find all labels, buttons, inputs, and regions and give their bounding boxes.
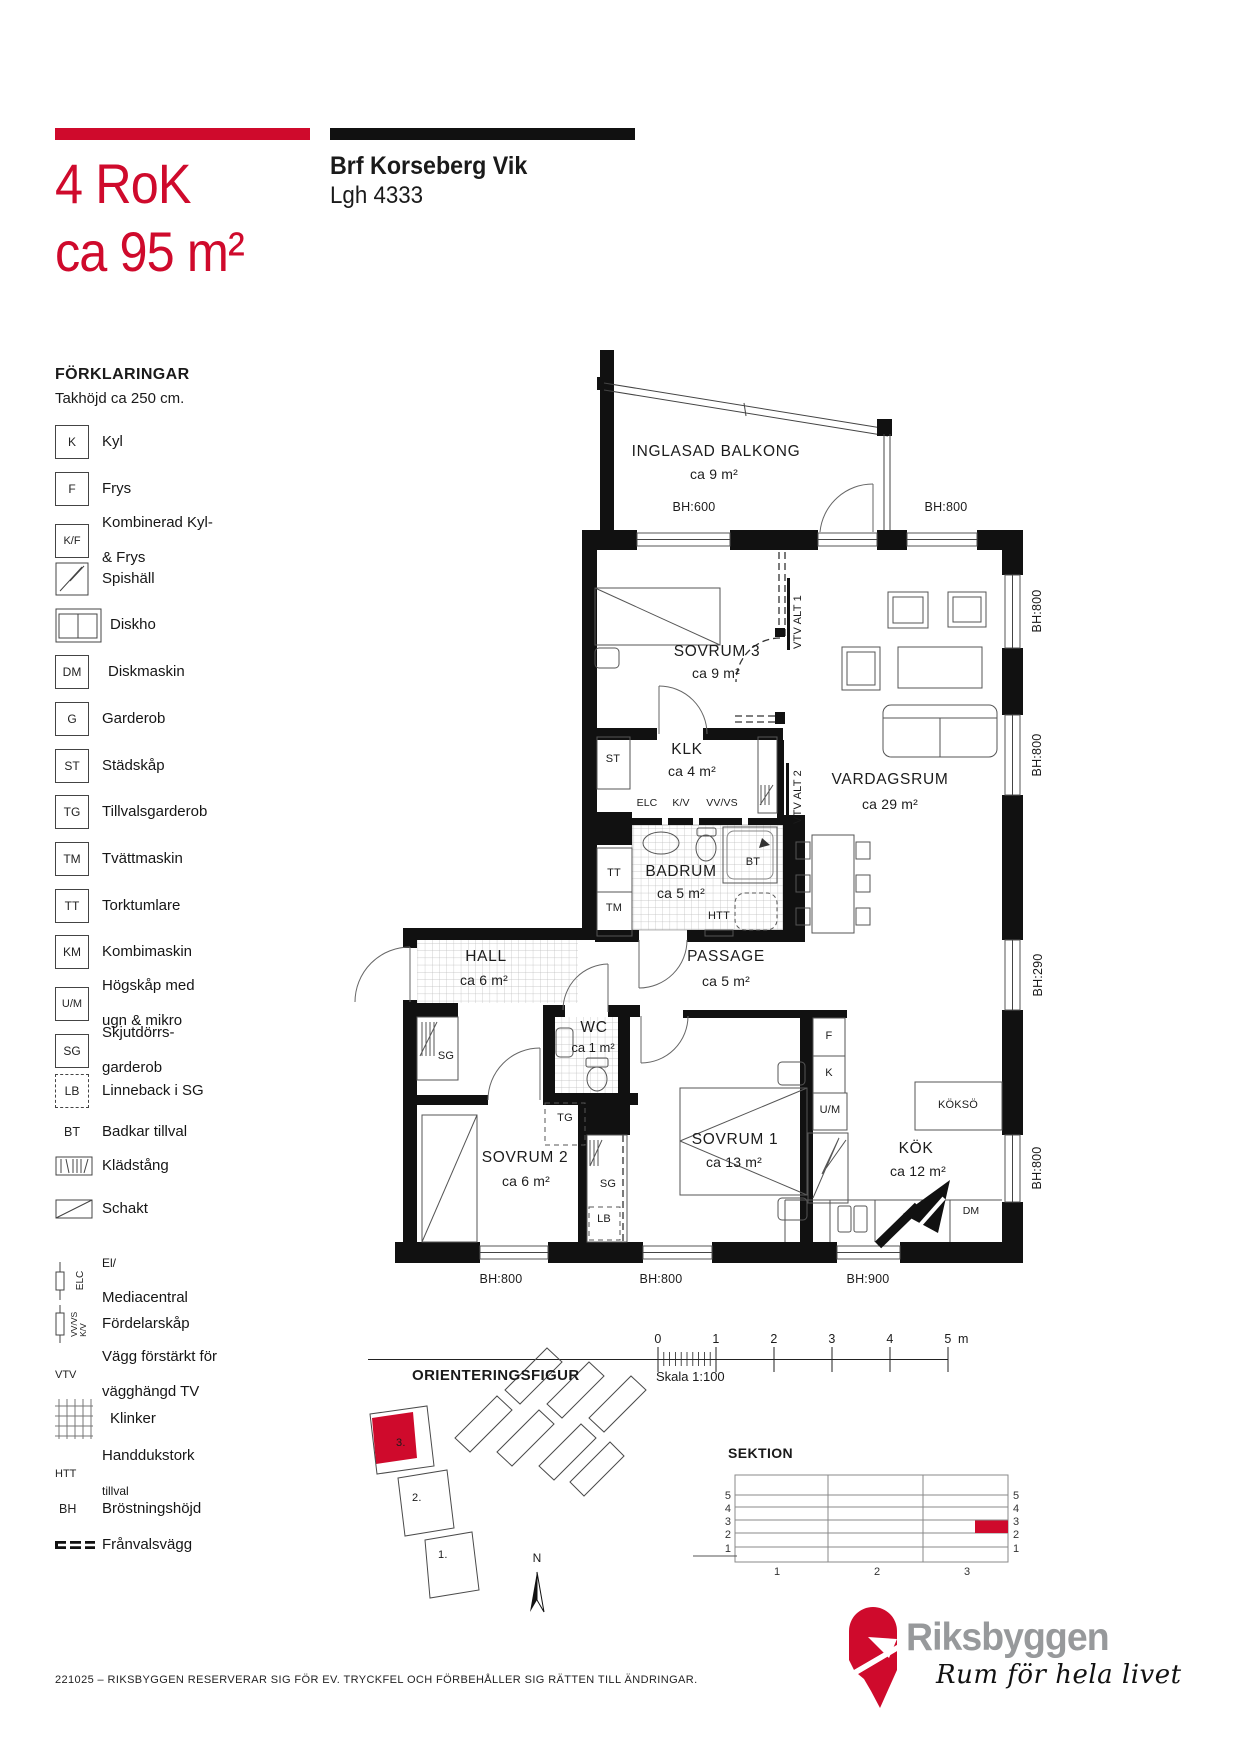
scale-tick-1: 1: [712, 1332, 719, 1346]
bh-label-right2: BH:800: [1030, 734, 1044, 777]
legend-item-kombinerad-kylfrys: K/F Kombinerad Kyl- & Frys: [55, 514, 213, 567]
compass-needle: [530, 1572, 544, 1612]
legend-label: Tillvalsgarderob: [102, 803, 207, 821]
legend-item-franvalsvagg: Frånvalsvägg: [55, 1533, 192, 1557]
north-label: N: [533, 1551, 542, 1565]
legend-item-kombimaskin: KM Kombimaskin: [55, 934, 192, 970]
room-area-sovrum2: ca 6 m²: [502, 1173, 550, 1189]
room-area-wc: ca 1 m²: [571, 1040, 614, 1055]
legend-label: Schakt: [102, 1200, 148, 1218]
legend-label: Högskåp med: [102, 977, 195, 994]
shaft-icon: [55, 1199, 93, 1219]
room-label-vardagsrum: VARDAGSRUM: [832, 771, 949, 789]
fixture-label-sg-hall: SG: [438, 1050, 454, 1062]
scale-tick-4: 4: [886, 1332, 893, 1346]
balcony-structure: [597, 350, 892, 532]
legend-label: Tvättmaskin: [102, 850, 183, 868]
fixture-label-lb: LB: [597, 1213, 611, 1225]
floor-label-left-5: 5: [725, 1490, 731, 1502]
scale-tick-0: 0: [654, 1332, 661, 1346]
room-area-passage: ca 5 m²: [702, 973, 750, 989]
elc-icon: [55, 1262, 69, 1300]
floor-label-left-4: 4: [725, 1503, 731, 1515]
fixture-label-st: ST: [606, 753, 620, 765]
bh-label-balkong: BH:600: [673, 500, 716, 514]
legend-label: Skjutdörrs-: [102, 1024, 175, 1041]
legend-label: El/: [102, 1256, 116, 1270]
title-line1: 4 RoK: [55, 150, 244, 218]
fixture-label-frys: F: [826, 1030, 833, 1042]
floorplan-sheet: 4 RoK ca 95 m² Brf Korseberg Vik Lgh 433…: [0, 0, 1240, 1754]
legend-label: Diskmaskin: [108, 663, 185, 681]
room-area-kok: ca 12 m²: [890, 1163, 946, 1179]
project-name: Brf Korseberg Vik: [330, 152, 527, 181]
bh-label-bottom2: BH:800: [640, 1272, 683, 1286]
htt-symbol: HTT: [55, 1468, 76, 1480]
fixture-label-kokso: KÖKSÖ: [938, 1099, 978, 1111]
fixture-label-tg: TG: [557, 1112, 573, 1124]
room-area-sovrum1: ca 13 m²: [706, 1154, 762, 1170]
room-label-hall: HALL: [465, 948, 507, 966]
fixture-label-dm: DM: [963, 1205, 980, 1217]
st-symbol-box: ST: [55, 749, 89, 783]
room-label-sovrum3: SOVRUM 3: [674, 643, 761, 661]
legend-label: Torktumlare: [102, 897, 180, 915]
floorplan-drawing: [330, 340, 1060, 1300]
km-symbol-box: KM: [55, 935, 89, 969]
legend-item-klinker: Klinker: [55, 1398, 156, 1440]
room-label-badrum: BADRUM: [645, 863, 716, 881]
footer-disclaimer: 221025 – RIKSBYGGEN RESERVERAR SIG FÖR E…: [55, 1674, 698, 1686]
room-label-sovrum1: SOVRUM 1: [692, 1131, 779, 1149]
vtv-symbol: VTV: [55, 1369, 76, 1381]
fixture-label-elc: ELC: [637, 797, 658, 809]
section-column-3: 3: [964, 1566, 970, 1578]
legend-label-2: Mediacentral: [102, 1289, 188, 1306]
room-label-sovrum2: SOVRUM 2: [482, 1149, 569, 1167]
legend-label: Vägg förstärkt för: [102, 1348, 217, 1365]
legend-item-tvattmaskin: TM Tvättmaskin: [55, 841, 183, 877]
floor-label-left-2: 2: [725, 1529, 731, 1541]
fixture-label-htt: HTT: [708, 910, 730, 922]
distribution-cabinet-icon: [55, 1305, 67, 1343]
room-label-balkong: INGLASAD BALKONG: [632, 443, 801, 461]
room-area-klk: ca 4 m²: [668, 763, 716, 779]
legend-item-stadskap: ST Städskåp: [55, 748, 165, 784]
legend-item-diskho: Diskho: [55, 607, 156, 643]
legend-item-torktumlare: TT Torktumlare: [55, 888, 180, 924]
legend-label: Klädstång: [102, 1157, 169, 1175]
legend-heading: FÖRKLARINGAR: [55, 366, 190, 384]
legend-item-elc: ELC El/ Mediacentral: [55, 1254, 188, 1307]
frys-symbol-box: F: [55, 472, 89, 506]
tm-symbol-box: TM: [55, 842, 89, 876]
legend-label: Kyl: [102, 433, 123, 451]
scale-unit: m: [958, 1332, 969, 1346]
g-symbol-box: G: [55, 702, 89, 736]
bh-label-right4: BH:800: [1030, 1147, 1044, 1190]
optout-wall-icon: [55, 1540, 95, 1550]
hob-icon: [55, 562, 89, 596]
legend-item-hogskap: U/M Högskåp med ugn & mikro: [55, 977, 195, 1030]
floor-label-right-2: 2: [1013, 1529, 1019, 1541]
floor-label-left-1: 1: [725, 1543, 731, 1555]
site-plan: [370, 1348, 646, 1612]
section-column-1: 1: [774, 1566, 780, 1578]
fixture-label-vvvs: VV/VS: [706, 797, 737, 809]
bt-symbol: BT: [64, 1125, 80, 1139]
fixture-label-bt: BT: [746, 856, 760, 868]
floor-label-right-5: 5: [1013, 1490, 1019, 1502]
livingroom-furniture: [796, 592, 997, 933]
north-arrow-icon: [878, 1180, 950, 1245]
clothes-rail-icon: [55, 1156, 93, 1176]
legend-item-tillvalsgarderob: TG Tillvalsgarderob: [55, 794, 207, 830]
fixture-label-kv: K/V: [672, 797, 689, 809]
sovrum2-sg-rail-hatch: [590, 1140, 602, 1166]
orientation-heading: ORIENTERINGSFIGUR: [412, 1367, 580, 1384]
section-heading: SEKTION: [728, 1445, 793, 1461]
floor-label-right-4: 4: [1013, 1503, 1019, 1515]
room-area-hall: ca 6 m²: [460, 972, 508, 988]
bh-label-right1: BH:800: [1030, 590, 1044, 633]
vvvs-kv-symbol: VV/VS K/V: [70, 1311, 89, 1336]
page-title: 4 RoK ca 95 m²: [55, 150, 244, 287]
brand-name: Riksbyggen: [906, 1616, 1109, 1660]
fixture-label-kyl: K: [825, 1067, 833, 1079]
bh-label-top: BH:800: [925, 500, 968, 514]
elc-symbol: ELC: [75, 1271, 86, 1290]
legend-item-schakt: Schakt: [55, 1196, 148, 1222]
klk-rail-hatch: [760, 785, 773, 805]
sink-icon: [55, 608, 102, 643]
room-label-klk: KLK: [671, 741, 702, 759]
red-accent-bar: [55, 128, 310, 140]
legend-label: Städskåp: [102, 757, 165, 775]
section-column-2: 2: [874, 1566, 880, 1578]
building-label-2: 2.: [412, 1492, 422, 1504]
legend-label: Badkar tillval: [102, 1123, 187, 1141]
kyl-symbol-box: K: [55, 425, 89, 459]
legend-item-spishall: Spishäll: [55, 561, 155, 597]
tg-symbol-box: TG: [55, 795, 89, 829]
tt-symbol-box: TT: [55, 889, 89, 923]
legend-item-brostningshojd: BH Bröstningshöjd: [55, 1497, 201, 1521]
room-area-badrum: ca 5 m²: [657, 885, 705, 901]
kylfrys-symbol-box: K/F: [55, 524, 89, 558]
legend-label: Frånvalsvägg: [102, 1536, 192, 1554]
fixture-label-sg-sovrum2: SG: [600, 1178, 616, 1190]
sg-symbol-box: SG: [55, 1034, 89, 1068]
legend-label: Bröstningshöjd: [102, 1500, 201, 1518]
scale-tick-2: 2: [770, 1332, 777, 1346]
legend-label: Klinker: [110, 1410, 156, 1428]
building-label-3: 3.: [396, 1437, 406, 1449]
legend-label: Fördelarskåp: [102, 1315, 190, 1333]
legend-label: Frys: [102, 480, 131, 498]
fixture-label-um: U/M: [820, 1104, 841, 1116]
fixture-label-vtv-alt1: VTV ALT 1: [792, 595, 804, 649]
legend-item-garderob: G Garderob: [55, 701, 165, 737]
black-accent-bar: [330, 128, 635, 140]
floor-label-right-1: 1: [1013, 1543, 1019, 1555]
room-area-balkong: ca 9 m²: [690, 466, 738, 482]
legend-item-handdukstork: HTT Handdukstork tillval: [55, 1447, 195, 1500]
room-label-wc: WC: [580, 1019, 607, 1037]
legend-item-fordelarskap: VV/VS K/V Fördelarskåp: [55, 1305, 190, 1343]
legend-label: Handdukstork: [102, 1447, 195, 1464]
lb-symbol-box: LB: [55, 1074, 89, 1108]
legend-item-linneback: LB Linneback i SG: [55, 1073, 204, 1109]
legend-label: Kombinerad Kyl-: [102, 514, 213, 531]
bh-label-bottom3: BH:900: [847, 1272, 890, 1286]
scale-caption: Skala 1:100: [656, 1369, 725, 1384]
riksbyggen-logo-icon: [843, 1598, 903, 1713]
room-area-vardagsrum: ca 29 m²: [862, 796, 918, 812]
legend-item-kyl: K Kyl: [55, 424, 123, 460]
bh-symbol: BH: [59, 1502, 76, 1516]
floor-label-right-3: 3: [1013, 1516, 1019, 1528]
title-line2: ca 95 m²: [55, 218, 244, 286]
bh-label-right3: BH:290: [1031, 954, 1045, 997]
legend-label: Diskho: [110, 616, 156, 634]
legend-label: Linneback i SG: [102, 1082, 204, 1100]
room-label-passage: PASSAGE: [687, 948, 765, 966]
fixture-label-tt: TT: [607, 867, 621, 879]
legend-item-skjutdorrsgarderob: SG Skjutdörrs- garderob: [55, 1024, 175, 1077]
legend-item-badkar: BT Badkar tillval: [55, 1120, 187, 1144]
brand-tagline: Rum för hela livet: [936, 1660, 1182, 1690]
legend-label: Kombimaskin: [102, 943, 192, 961]
legend-label: Spishäll: [102, 570, 155, 588]
room-label-kok: KÖK: [899, 1140, 934, 1158]
dm-symbol-box: DM: [55, 655, 89, 689]
legend-item-diskmaskin: DM Diskmaskin: [55, 654, 185, 690]
um-symbol-box: U/M: [55, 987, 89, 1021]
kv-symbol: K/V: [80, 1311, 89, 1336]
room-area-sovrum3: ca 9 m²: [692, 665, 740, 681]
bh-label-bottom1: BH:800: [480, 1272, 523, 1286]
hall-sg-rail-hatch: [420, 1022, 437, 1056]
legend-label: Garderob: [102, 710, 165, 728]
apartment-number: Lgh 4333: [330, 182, 423, 210]
legend-item-vtv: VTV Vägg förstärkt för vägghängd TV: [55, 1348, 217, 1401]
legend-item-kladstang: Klädstång: [55, 1153, 169, 1179]
section-highlight: [975, 1521, 1008, 1534]
legend-item-frys: F Frys: [55, 471, 131, 507]
building-label-1: 1.: [438, 1549, 448, 1561]
tiles-icon: [55, 1398, 93, 1440]
section-diagram: [693, 1475, 1008, 1562]
fixture-label-tm: TM: [606, 902, 622, 914]
scale-tick-5: 5: [944, 1332, 951, 1346]
scale-tick-3: 3: [828, 1332, 835, 1346]
floor-label-left-3: 3: [725, 1516, 731, 1528]
fixture-label-vtv-alt2: VTV ALT 2: [792, 770, 804, 824]
legend-subheading: Takhöjd ca 250 cm.: [55, 390, 184, 407]
